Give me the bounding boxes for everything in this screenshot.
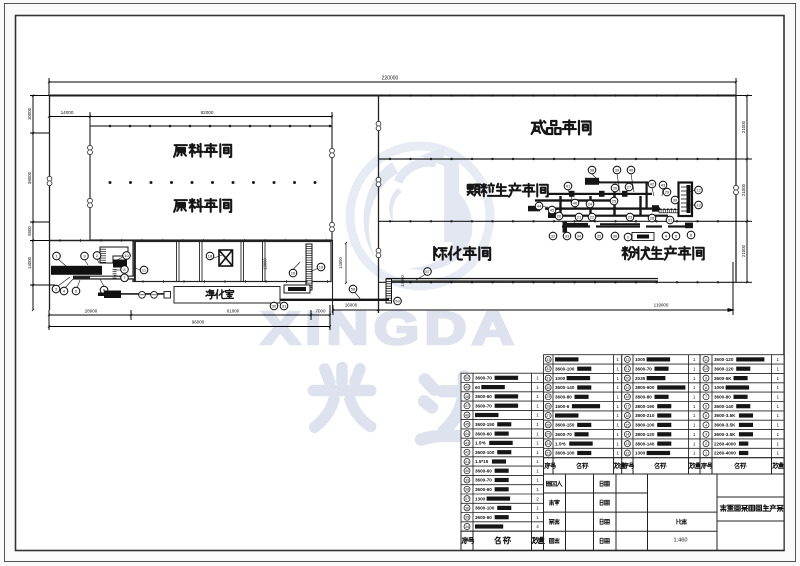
svg-text:1: 1	[693, 376, 696, 381]
svg-text:2260-4000: 2260-4000	[714, 441, 736, 446]
svg-text:3: 3	[705, 433, 707, 437]
svg-text:1: 1	[777, 357, 780, 362]
svg-text:7000: 7000	[315, 309, 326, 314]
svg-text:8: 8	[705, 386, 707, 390]
svg-text:2: 2	[705, 442, 707, 446]
svg-text:1: 1	[536, 385, 539, 390]
svg-text:1: 1	[616, 385, 619, 390]
svg-text:1: 1	[616, 423, 619, 428]
svg-text:1: 1	[616, 357, 619, 362]
svg-text:3800-210: 3800-210	[635, 413, 655, 418]
svg-text:1: 1	[693, 451, 696, 456]
svg-text:1: 1	[777, 413, 780, 418]
svg-text:30: 30	[673, 197, 678, 202]
svg-text:27: 27	[627, 184, 632, 189]
svg-text:1: 1	[777, 395, 780, 400]
svg-text:1: 1	[693, 432, 696, 437]
svg-text:46: 46	[465, 413, 469, 417]
svg-text:14: 14	[625, 433, 629, 437]
svg-text:16000: 16000	[345, 303, 358, 308]
svg-text:28000: 28000	[85, 309, 98, 314]
svg-text:42: 42	[465, 451, 469, 455]
svg-text:3600-120: 3600-120	[714, 357, 734, 362]
svg-text:3600-3.5K: 3600-3.5K	[714, 423, 736, 428]
svg-text:3600-140: 3600-140	[714, 404, 734, 409]
svg-text:1: 1	[536, 394, 539, 399]
svg-text:3800-900: 3800-900	[635, 385, 655, 390]
svg-text:1: 1	[536, 506, 539, 511]
svg-text:40: 40	[629, 167, 634, 172]
svg-text:9: 9	[705, 377, 707, 381]
svg-text:3600-70: 3600-70	[555, 432, 572, 437]
svg-text:1: 1	[536, 468, 539, 473]
svg-text:32: 32	[551, 233, 556, 238]
svg-text:42: 42	[650, 181, 655, 186]
svg-text:30: 30	[272, 303, 277, 308]
svg-text:1: 1	[536, 376, 539, 381]
svg-text:1: 1	[777, 451, 780, 456]
svg-text:3600-70: 3600-70	[475, 403, 492, 408]
svg-text:1: 1	[616, 366, 619, 371]
svg-text:43: 43	[465, 441, 469, 445]
svg-text:3600-3.5K: 3600-3.5K	[714, 432, 736, 437]
svg-text:1: 1	[616, 432, 619, 437]
svg-text:3600-100: 3600-100	[475, 506, 495, 511]
svg-text:36: 36	[465, 506, 469, 510]
svg-text:3600-60: 3600-60	[475, 468, 492, 473]
svg-text:24: 24	[546, 442, 550, 446]
svg-text:1: 1	[693, 441, 696, 446]
svg-text:58: 58	[351, 286, 356, 291]
svg-text:60: 60	[475, 385, 481, 390]
svg-text:29: 29	[546, 395, 550, 399]
svg-text:1: 1	[536, 431, 539, 436]
svg-text:31: 31	[282, 303, 287, 308]
svg-text:61000: 61000	[227, 309, 240, 314]
svg-text:6: 6	[705, 405, 707, 409]
svg-text:3600-60: 3600-60	[475, 487, 492, 492]
svg-text:11: 11	[704, 358, 708, 362]
svg-text:25: 25	[546, 433, 550, 437]
svg-text:3600-3.5K: 3600-3.5K	[714, 413, 736, 418]
svg-text:1: 1	[777, 441, 780, 446]
svg-text:1: 1	[536, 413, 539, 418]
svg-text:2260-4000: 2260-4000	[714, 451, 736, 456]
svg-text:49: 49	[465, 386, 469, 390]
svg-text:36: 36	[613, 233, 618, 238]
svg-text:32: 32	[546, 367, 550, 371]
svg-text:1000: 1000	[635, 357, 646, 362]
svg-text:3600-140: 3600-140	[555, 385, 575, 390]
svg-text:1: 1	[536, 403, 539, 408]
svg-text:3600-60: 3600-60	[475, 431, 492, 436]
svg-text:1: 1	[693, 366, 696, 371]
svg-text:3800-100: 3800-100	[635, 423, 655, 428]
svg-text:29: 29	[665, 189, 670, 194]
svg-text:17: 17	[625, 405, 629, 409]
svg-text:10000: 10000	[27, 107, 32, 120]
svg-text:33: 33	[546, 358, 550, 362]
svg-text:21: 21	[577, 214, 582, 219]
svg-text:1: 1	[616, 413, 619, 418]
svg-text:19: 19	[625, 386, 629, 390]
svg-text:12: 12	[625, 451, 629, 455]
svg-text:28: 28	[650, 215, 655, 220]
svg-text:21000: 21000	[741, 120, 746, 133]
svg-text:1300: 1300	[635, 451, 646, 456]
svg-text:7: 7	[705, 395, 707, 399]
svg-text:1: 1	[616, 404, 619, 409]
svg-text:16: 16	[625, 414, 629, 418]
svg-text:23: 23	[628, 214, 633, 219]
svg-text:1: 1	[536, 422, 539, 427]
svg-text:2035: 2035	[635, 376, 646, 381]
svg-text:5: 5	[705, 414, 707, 418]
svg-text:14500: 14500	[400, 275, 405, 287]
svg-text:1: 1	[616, 395, 619, 400]
svg-text:4: 4	[536, 524, 539, 529]
svg-text:3600-100: 3600-100	[475, 450, 495, 455]
svg-text:41: 41	[566, 183, 571, 188]
svg-text:50: 50	[465, 376, 469, 380]
svg-text:24: 24	[588, 201, 593, 206]
svg-text:1300: 1300	[475, 496, 486, 501]
svg-text:40: 40	[465, 469, 469, 473]
svg-text:14000: 14000	[27, 256, 32, 269]
svg-text:1: 1	[616, 451, 619, 456]
svg-text:1: 1	[536, 450, 539, 455]
svg-text:13: 13	[696, 202, 701, 207]
svg-text:1500-6: 1500-6	[555, 404, 570, 409]
svg-text:37: 37	[465, 497, 469, 501]
svg-text:18: 18	[208, 253, 213, 258]
svg-text:1: 1	[777, 423, 780, 428]
svg-text:22: 22	[625, 358, 629, 362]
svg-text:39: 39	[615, 167, 620, 172]
svg-text:14500: 14500	[338, 257, 343, 269]
svg-text:21000: 21000	[741, 244, 746, 257]
svg-text:57: 57	[425, 269, 430, 274]
svg-text:20: 20	[557, 213, 562, 218]
svg-text:46: 46	[573, 200, 578, 205]
svg-text:3600-5K: 3600-5K	[714, 376, 732, 381]
svg-text:3600-120: 3600-120	[714, 366, 734, 371]
svg-text:13: 13	[625, 442, 629, 446]
svg-text:10: 10	[124, 253, 129, 258]
svg-text:1.5*6: 1.5*6	[475, 441, 486, 446]
svg-text:16: 16	[291, 270, 296, 275]
svg-text:10: 10	[704, 367, 708, 371]
svg-text:35: 35	[597, 233, 602, 238]
svg-text:20: 20	[625, 377, 629, 381]
svg-text:3800-140: 3800-140	[635, 441, 655, 446]
svg-text:38: 38	[465, 488, 469, 492]
svg-text:119000: 119000	[654, 303, 669, 308]
svg-text:3600-60: 3600-60	[475, 394, 492, 399]
svg-text:1: 1	[616, 441, 619, 446]
svg-text:6500: 6500	[27, 226, 32, 236]
svg-text:30: 30	[546, 386, 550, 390]
svg-text:1: 1	[536, 515, 539, 520]
svg-text:44: 44	[537, 203, 542, 208]
svg-text:1:460: 1:460	[674, 538, 688, 544]
svg-text:3600-100: 3600-100	[555, 366, 575, 371]
svg-text:220000: 220000	[382, 76, 399, 82]
svg-text:3600-70: 3600-70	[635, 366, 652, 371]
svg-text:1: 1	[693, 395, 696, 400]
svg-text:1: 1	[693, 357, 696, 362]
svg-text:21000: 21000	[741, 183, 746, 196]
svg-text:21: 21	[625, 367, 629, 371]
svg-text:47: 47	[465, 404, 469, 408]
svg-text:59: 59	[395, 298, 400, 303]
svg-text:1.5*15: 1.5*15	[475, 459, 489, 464]
svg-text:3800-120: 3800-120	[635, 432, 655, 437]
svg-text:34: 34	[577, 233, 582, 238]
svg-text:4: 4	[705, 423, 707, 427]
svg-text:3600-80: 3600-80	[714, 395, 731, 400]
svg-text:26: 26	[613, 185, 618, 190]
svg-text:3600-60: 3600-60	[475, 515, 492, 520]
svg-text:1: 1	[536, 478, 539, 483]
svg-text:1: 1	[693, 404, 696, 409]
svg-text:1: 1	[536, 487, 539, 492]
svg-text:3800-190: 3800-190	[635, 404, 655, 409]
svg-text:39: 39	[465, 478, 469, 482]
svg-text:27: 27	[546, 414, 550, 418]
svg-text:1: 1	[536, 441, 539, 446]
svg-text:41: 41	[465, 460, 469, 464]
svg-text:23: 23	[546, 451, 550, 455]
svg-text:3600-70: 3600-70	[475, 376, 492, 381]
svg-text:48: 48	[465, 395, 469, 399]
svg-text:43: 43	[661, 182, 666, 187]
svg-text:3600-80: 3600-80	[555, 395, 572, 400]
svg-text:13000: 13000	[263, 258, 268, 270]
svg-text:3600-100: 3600-100	[555, 451, 575, 456]
svg-text:82000: 82000	[201, 110, 214, 115]
svg-text:96000: 96000	[192, 320, 205, 325]
svg-text:1: 1	[705, 451, 707, 455]
svg-text:1: 1	[777, 432, 780, 437]
svg-text:31: 31	[668, 217, 673, 222]
svg-text:38: 38	[590, 167, 595, 172]
svg-text:34: 34	[465, 525, 469, 529]
svg-text:22: 22	[590, 214, 595, 219]
svg-text:35: 35	[465, 516, 469, 520]
svg-text:1: 1	[536, 459, 539, 464]
svg-text:14000: 14000	[61, 110, 74, 115]
svg-text:19: 19	[319, 264, 324, 269]
svg-text:3800-80: 3800-80	[635, 395, 652, 400]
svg-text:3600-150: 3600-150	[475, 422, 495, 427]
svg-text:3600-70: 3600-70	[475, 478, 492, 483]
svg-text:1000: 1000	[555, 376, 566, 381]
svg-text:1.5*6: 1.5*6	[555, 441, 566, 446]
svg-text:1: 1	[693, 413, 696, 418]
svg-text:1: 1	[777, 404, 780, 409]
svg-text:2: 2	[536, 496, 539, 501]
svg-text:1: 1	[777, 366, 780, 371]
svg-text:45: 45	[465, 423, 469, 427]
svg-text:45: 45	[550, 207, 555, 212]
svg-text:33: 33	[565, 233, 570, 238]
svg-text:15: 15	[625, 423, 629, 427]
svg-text:28: 28	[546, 405, 550, 409]
svg-text:26: 26	[546, 423, 550, 427]
svg-text:1: 1	[616, 376, 619, 381]
svg-text:1: 1	[777, 376, 780, 381]
svg-text:12: 12	[696, 187, 701, 192]
svg-text:38000: 38000	[27, 171, 32, 184]
svg-text:31: 31	[546, 377, 550, 381]
svg-text:25: 25	[612, 198, 617, 203]
svg-text:1: 1	[693, 385, 696, 390]
svg-text:1: 1	[693, 423, 696, 428]
svg-text:18: 18	[625, 395, 629, 399]
svg-text:44: 44	[465, 432, 469, 436]
svg-text:1000: 1000	[714, 385, 725, 390]
svg-text:1: 1	[777, 385, 780, 390]
svg-text:3600-150: 3600-150	[555, 423, 575, 428]
